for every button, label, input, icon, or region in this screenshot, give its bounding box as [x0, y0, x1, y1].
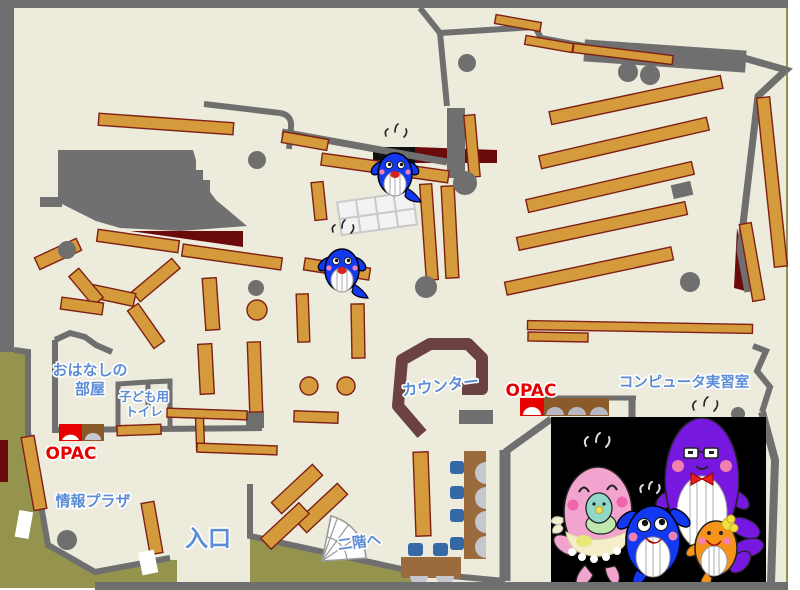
label-opac-left: OPAC	[46, 444, 97, 464]
bookshelf	[528, 332, 588, 342]
chair	[450, 509, 464, 522]
chair	[433, 543, 448, 556]
bookshelf	[294, 411, 338, 424]
counter-table	[459, 410, 493, 424]
wall-top	[0, 0, 788, 8]
bookshelf	[351, 304, 365, 358]
label-kids-toilet-2: トイレ	[125, 404, 163, 419]
label-storytelling-room-2: 部屋	[75, 380, 105, 398]
label-storytelling-room: おはなしの	[52, 361, 127, 379]
bookshelf	[197, 443, 277, 455]
chair	[450, 537, 464, 550]
bookshelf	[202, 278, 220, 331]
floor-map-canvas: おはなしの 部屋 子ども用 トイレ OPAC 情報プラザ 入口 二階へ カウンタ…	[0, 0, 800, 590]
round-table	[337, 377, 355, 395]
label-computer-room: コンピュータ実習室	[619, 373, 750, 391]
bookshelf	[247, 342, 262, 412]
bookshelf	[296, 294, 310, 342]
bookshelf	[117, 424, 161, 436]
label-opac-right: OPAC	[506, 381, 557, 401]
round-table	[247, 300, 267, 320]
chair	[450, 461, 464, 474]
chair	[450, 486, 464, 499]
wall-left	[0, 0, 14, 352]
bookshelf	[198, 344, 215, 395]
label-kids-toilet: 子ども用	[119, 389, 169, 404]
chair	[408, 543, 423, 556]
bookshelf	[167, 408, 247, 420]
label-entrance: 入口	[185, 526, 231, 552]
library-floor-map: おはなしの 部屋 子ども用 トイレ OPAC 情報プラザ 入口 二階へ カウンタ…	[0, 0, 800, 590]
round-table	[300, 377, 318, 395]
label-info-plaza: 情報プラザ	[55, 492, 130, 510]
bookshelf	[413, 452, 431, 536]
opac-terminals-left	[59, 424, 104, 441]
